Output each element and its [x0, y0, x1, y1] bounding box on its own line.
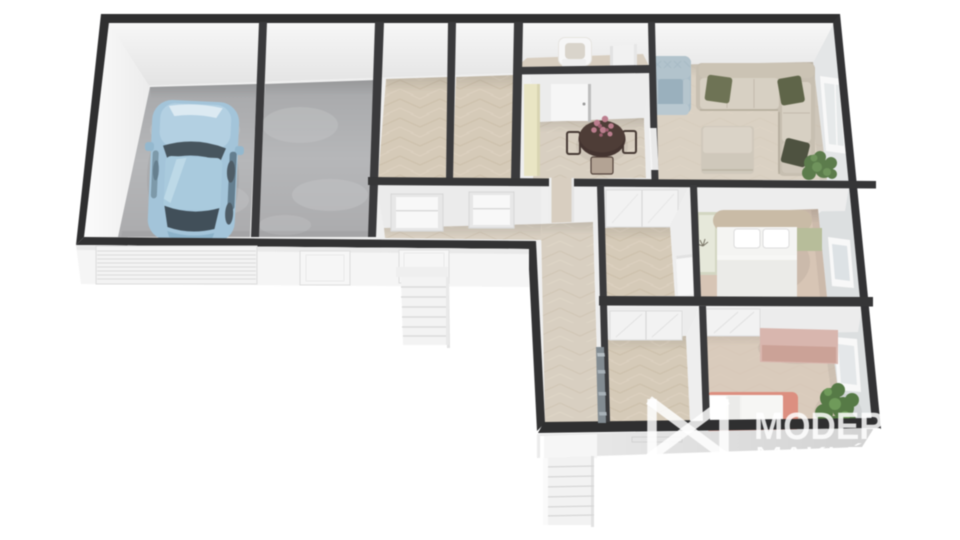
- svg-text:MODERN: MODERN: [754, 406, 910, 448]
- svg-text:MAKLÉŘI: MAKLÉŘI: [755, 443, 901, 466]
